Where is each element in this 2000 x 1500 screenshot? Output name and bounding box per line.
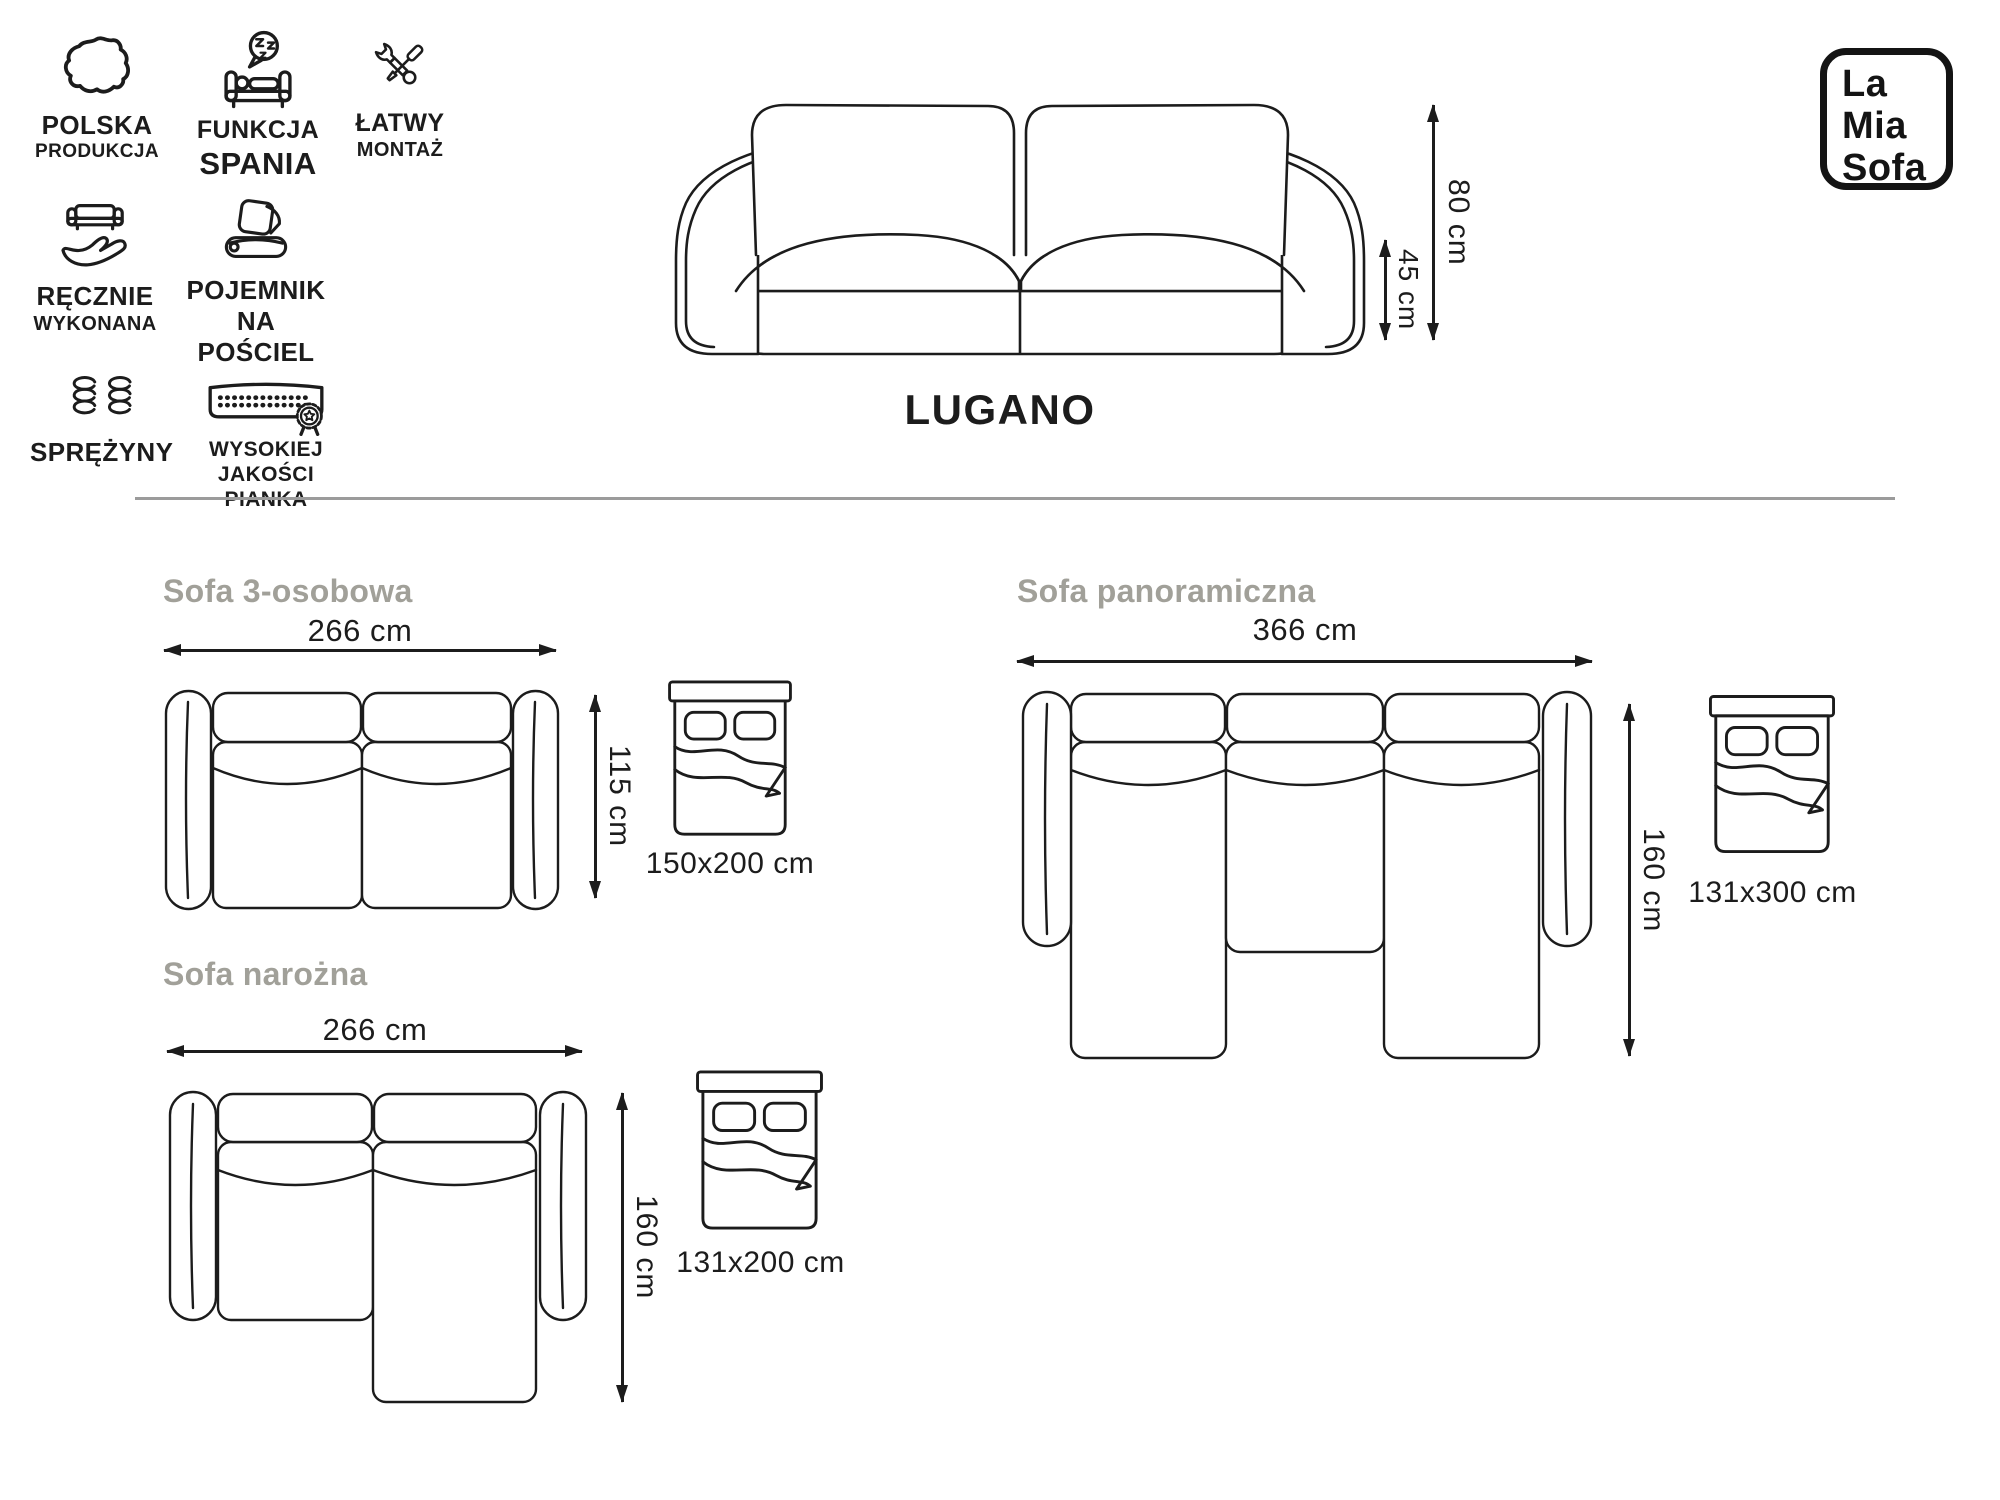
feature-sprezyny: SPRĘŻYNY [30, 366, 170, 468]
variant3-bed-dim: 131x200 cm [668, 1246, 853, 1280]
sleep-function-icon [216, 30, 300, 114]
variant3-width-arrow [167, 1050, 582, 1053]
high-quality-foam-icon [195, 376, 337, 436]
feature-sublabel: JAKOŚCI PIANKA [183, 462, 349, 512]
variant-heading-panoramiczna: Sofa panoramiczna [1017, 573, 1316, 610]
feature-wysokiej-jakosci-pianka: WYSOKIEJ JAKOŚCI PIANKA [183, 376, 349, 513]
feature-sublabel: SPANIA [175, 145, 341, 182]
seat-height-dim: 45 cm [1392, 240, 1424, 340]
variant2-bed-dim: 131x300 cm [1680, 876, 1865, 910]
bed-icon [1709, 694, 1835, 856]
sofa-top-view-narozna [168, 1088, 588, 1406]
brand-logo: La Mia Sofa [1820, 48, 1953, 190]
variant2-depth-dim: 160 cm [1636, 704, 1670, 1056]
feature-sublabel: NA POŚCIEL [176, 306, 336, 368]
sofa-top-view-3-osobowa [164, 686, 560, 914]
brand-logo-line: Mia [1842, 105, 1946, 147]
variant3-width-dim: 266 cm [275, 1012, 475, 1048]
poland-map-icon [59, 34, 135, 104]
variant1-bed-dim: 150x200 cm [640, 847, 820, 881]
feature-label: RĘCZNIE [20, 282, 170, 312]
springs-icon [66, 366, 134, 428]
feature-label: ŁATWY [332, 109, 468, 138]
bed-icon [696, 1070, 823, 1232]
feature-funkcja-spania: FUNKCJA SPANIA [175, 30, 341, 182]
feature-sublabel: PRODUKCJA [22, 141, 172, 164]
brand-logo-line: La [1842, 63, 1946, 105]
variant2-width-dim: 366 cm [1205, 612, 1405, 648]
product-title: LUGANO [840, 386, 1160, 434]
feature-polska-produkcja: POLSKA PRODUKCJA [22, 34, 172, 164]
section-divider [135, 497, 1895, 500]
feature-sublabel: WYKONANA [20, 312, 170, 336]
variant1-width-dim: 266 cm [260, 613, 460, 649]
feature-label: FUNKCJA [175, 116, 341, 145]
total-height-dim: 80 cm [1441, 105, 1475, 340]
handmade-icon [55, 198, 135, 274]
variant1-width-arrow [164, 649, 556, 652]
variant1-depth-dim: 115 cm [602, 695, 636, 898]
feature-label: SPRĘŻYNY [30, 438, 170, 468]
sofa-front-view-drawing [640, 85, 1400, 360]
total-height-arrow [1432, 105, 1435, 340]
feature-pojemnik-na-posciel: POJEMNIK NA POŚCIEL [176, 196, 336, 368]
variant3-depth-dim: 160 cm [629, 1093, 663, 1402]
variant2-width-arrow [1017, 660, 1592, 663]
variant2-depth-arrow [1628, 704, 1631, 1056]
feature-label: POLSKA [22, 111, 172, 141]
bed-icon [668, 680, 792, 838]
sofa-top-view-panoramiczna [1021, 688, 1593, 1062]
feature-recznie-wykonana: RĘCZNIE WYKONANA [20, 198, 170, 336]
feature-latwy-montaz: ŁATWY MONTAŻ [332, 36, 468, 162]
seat-height-arrow [1384, 240, 1387, 340]
feature-label: POJEMNIK [176, 276, 336, 306]
feature-sublabel: MONTAŻ [332, 138, 468, 162]
easy-assembly-icon [368, 36, 432, 100]
brand-logo-line: Sofa [1842, 147, 1946, 189]
bedding-storage-icon [217, 196, 295, 270]
variant1-depth-arrow [594, 695, 597, 898]
variant3-depth-arrow [621, 1093, 624, 1402]
variant-heading-narozna: Sofa narożna [163, 956, 368, 993]
feature-label: WYSOKIEJ [183, 438, 349, 462]
spec-sheet: POLSKA PRODUKCJA FUNKCJA SPANIA [0, 0, 2000, 1500]
variant-heading-3-osobowa: Sofa 3-osobowa [163, 573, 413, 610]
